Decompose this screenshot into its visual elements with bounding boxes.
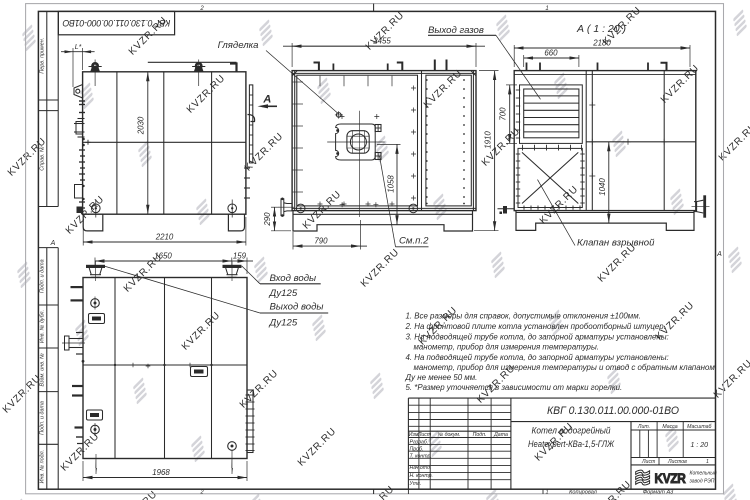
svg-text:159: 159	[233, 251, 247, 260]
svg-text:Лист: Лист	[417, 432, 432, 438]
svg-text:Подп.: Подп.	[473, 432, 487, 438]
svg-text:Н. контр.: Н. контр.	[410, 473, 433, 479]
svg-text:Выход воды: Выход воды	[270, 302, 324, 313]
svg-text:См.п.2: См.п.2	[399, 236, 429, 247]
svg-text:2180: 2180	[592, 38, 611, 47]
svg-text:А ( 1 : 20 ): А ( 1 : 20 )	[576, 23, 626, 35]
svg-text:Взам. инв. №: Взам. инв. №	[40, 353, 46, 387]
svg-text:Подп. и дата: Подп. и дата	[40, 259, 46, 293]
svg-text:Выход газов: Выход газов	[428, 25, 484, 36]
svg-text:1910: 1910	[484, 131, 493, 149]
svg-text:L*: L*	[75, 44, 82, 51]
svg-text:Подп. и дата: Подп. и дата	[40, 401, 46, 435]
svg-text:2455: 2455	[372, 37, 391, 46]
svg-text:700: 700	[499, 107, 508, 121]
svg-text:Инв. № дубл.: Инв. № дубл.	[40, 310, 46, 343]
svg-text:4. На подводящей трубе котла,: 4. На подводящей трубе котла, до запорно…	[406, 353, 669, 362]
svg-text:1: 1	[545, 490, 548, 496]
svg-text:2: 2	[199, 6, 204, 12]
svg-text:1. Все размеры для справок, до: 1. Все размеры для справок, допустимые о…	[406, 312, 641, 321]
svg-text:№ докум.: № докум.	[438, 432, 461, 438]
svg-text:Справ. №: Справ. №	[40, 146, 46, 171]
svg-text:Нач.отд.: Нач.отд.	[410, 465, 432, 471]
svg-text:Вход воды: Вход воды	[270, 273, 317, 284]
svg-text:660: 660	[544, 48, 558, 57]
svg-text:Перв. примен.: Перв. примен.	[40, 38, 46, 74]
svg-text:Масштаб: Масштаб	[687, 424, 712, 430]
svg-text:Листов: Листов	[667, 459, 687, 465]
svg-text:Разраб.: Разраб.	[410, 440, 429, 446]
svg-text:Котел водогрейный: Котел водогрейный	[532, 425, 612, 436]
svg-text:КВГ 0.130.011.00.000-01ВО: КВГ 0.130.011.00.000-01ВО	[62, 18, 170, 28]
svg-text:Копировал: Копировал	[569, 490, 598, 496]
svg-text:790: 790	[314, 236, 328, 245]
svg-text:Гляделка: Гляделка	[218, 40, 259, 51]
svg-text:5. *Размер уточняется в зависи: 5. *Размер уточняется в зависимости от м…	[406, 383, 623, 392]
svg-text:завод РЭП: завод РЭП	[689, 479, 715, 485]
svg-text:2. На фронтовой плите котла ус: 2. На фронтовой плите котла установлен п…	[405, 322, 666, 331]
svg-text:Лист: Лист	[641, 459, 656, 465]
svg-text:Клапан взрывной: Клапан взрывной	[577, 237, 655, 248]
svg-text:290: 290	[263, 212, 272, 227]
svg-text:1650: 1650	[154, 251, 172, 260]
svg-text:манометр, прибор для измерения: манометр, прибор для измерения температу…	[414, 363, 716, 372]
svg-text:КВГ 0.130.011.00.000-01ВО: КВГ 0.130.011.00.000-01ВО	[547, 405, 679, 417]
svg-text:Ду не менее 50 мм.: Ду не менее 50 мм.	[405, 373, 478, 382]
svg-text:2030: 2030	[137, 116, 146, 135]
svg-text:Heatexpert-КВа-1,5-ГЛЖ: Heatexpert-КВа-1,5-ГЛЖ	[528, 438, 615, 449]
svg-text:KVZR: KVZR	[655, 470, 686, 486]
svg-text:Проб.: Проб.	[410, 446, 424, 452]
svg-text:манометр, прибор для измерения: манометр, прибор для измерения температу…	[414, 343, 599, 352]
svg-text:3. На подводящей трубе котла,: 3. На подводящей трубе котла, до запорно…	[406, 333, 669, 342]
svg-text:Ду125: Ду125	[269, 288, 298, 299]
svg-text:1968: 1968	[152, 468, 170, 477]
svg-text:А: А	[50, 240, 56, 247]
svg-text:А: А	[716, 251, 722, 258]
svg-text:Лит.: Лит.	[637, 424, 650, 430]
svg-text:Формат А3: Формат А3	[643, 490, 674, 496]
svg-text:1 : 20: 1 : 20	[691, 442, 709, 449]
svg-text:Котельный: Котельный	[690, 470, 717, 477]
svg-text:1: 1	[706, 459, 709, 465]
svg-text:Т. контр.: Т. контр.	[410, 453, 432, 459]
svg-text:1040: 1040	[598, 178, 607, 196]
svg-text:Ду125: Ду125	[269, 318, 298, 329]
svg-text:Дата: Дата	[493, 432, 508, 438]
svg-text:1058: 1058	[386, 175, 395, 193]
svg-text:1: 1	[545, 6, 548, 12]
svg-text:2210: 2210	[155, 232, 174, 241]
svg-text:Инв. № подл.: Инв. № подл.	[40, 450, 46, 483]
svg-text:Масса: Масса	[662, 424, 677, 430]
svg-text:Утв.: Утв.	[410, 481, 422, 487]
svg-text:А: А	[262, 94, 271, 106]
